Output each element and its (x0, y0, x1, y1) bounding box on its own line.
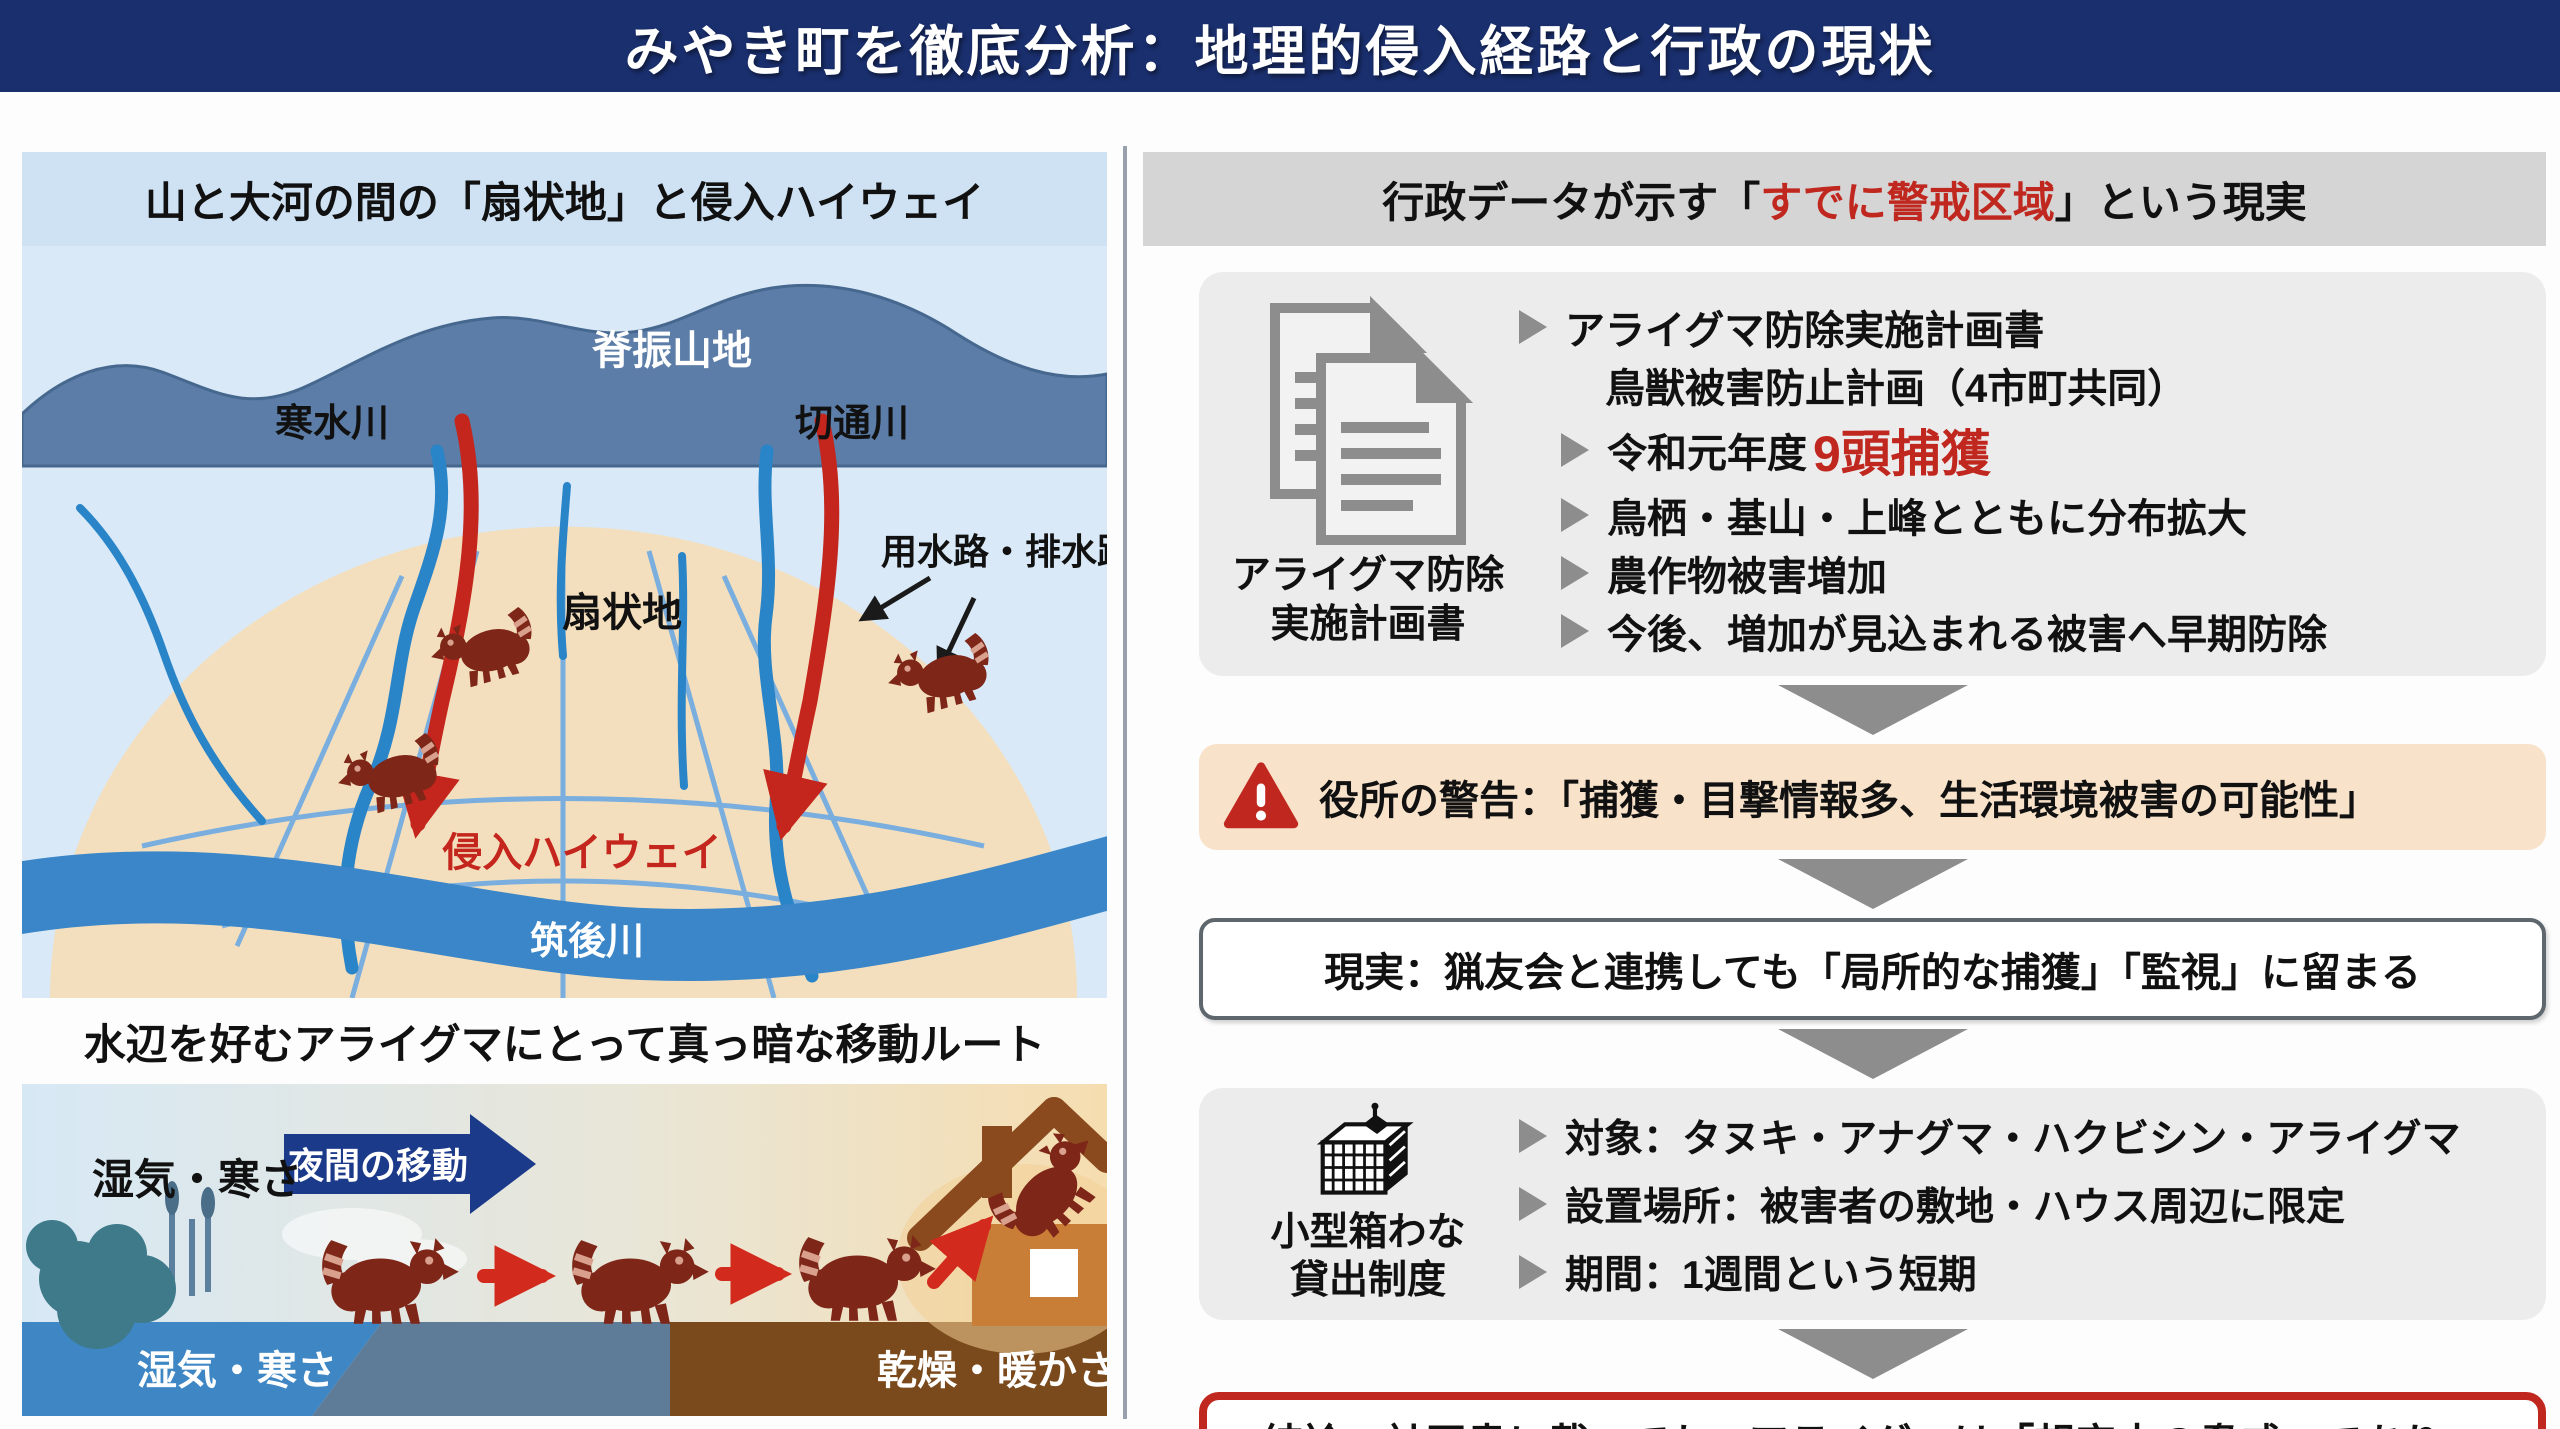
plan-documents-card: アライグマ防除 実施計画書 アライグマ防除実施計画書 鳥獣被害防止計画（4市町共… (1199, 272, 2546, 676)
title-bar: みやき町を徹底分析：地理的侵入経路と行政の現状 (0, 0, 2560, 92)
reality-text: 現実：猟友会と連携しても「局所的な捕獲」「監視」に留まる (1324, 940, 2421, 998)
bullet-triangle-icon (1561, 614, 1589, 648)
plan-documents-left: アライグマ防除 実施計画書 (1225, 296, 1511, 652)
warning-text: 役所の警告：「捕獲・目撃情報多、生活環境被害の可能性」 (1319, 768, 2379, 826)
plan-documents-items: アライグマ防除実施計画書 鳥獣被害防止計画（4市町共同） 令和元年度 9頭捕獲 (1511, 296, 2520, 652)
night-movement-label: 夜間の移動 (287, 1145, 468, 1186)
bullet-triangle-icon (1519, 1255, 1547, 1289)
flow-down-arrow (1778, 685, 1968, 735)
trap-lending-card: 小型箱わな 貸出制度 対象：タヌキ・アナグマ・ハクビシン・アライグマ 設置場所：… (1199, 1088, 2546, 1320)
bullet-triangle-icon (1561, 433, 1589, 467)
waterways-label: 用水路・排水路 (881, 531, 1107, 572)
trap-item-3: 期間：1週間という短期 (1519, 1244, 2520, 1300)
fan-map-svg: 脊振山地 寒水川 切通川 用水路・排水路 扇状地 侵入ハイウェイ 筑後川 (22, 246, 1107, 998)
doc-item-6: 今後、増加が見込まれる被害へ早期防除 (1561, 602, 2520, 660)
scene-svg: 夜間の移動 (22, 1084, 1107, 1416)
right-panel: 行政データが示す「すでに警戒区域」という現実 (1143, 100, 2546, 1423)
box-trap-label-line2: 貸出制度 (1270, 1257, 1465, 1306)
fan-label: 扇状地 (562, 591, 682, 635)
mountain-label: 脊振山地 (592, 329, 752, 373)
conclusion-line1: 結論：計画書に載っても、アライグマは「想定内の脅威」であり、 (1262, 1414, 2484, 1429)
box-trap-label-line1: 小型箱わな (1270, 1209, 1465, 1258)
right-panel-header: 行政データが示す「すでに警戒区域」という現実 (1143, 152, 2546, 246)
bullet-triangle-icon (1561, 556, 1589, 590)
trap-lending-left: 小型箱わな 貸出制度 (1225, 1102, 1511, 1306)
right-header-highlight: すでに警戒区域 (1760, 169, 2054, 230)
scene-top-left-label: 湿気・寒さ (92, 1156, 302, 1203)
doc-item-5: 農作物被害増加 (1561, 544, 2520, 602)
panels: 山と大河の間の「扇状地」と侵入ハイウェイ (22, 100, 2546, 1423)
right-header-prefix: 行政データが示す「 (1382, 169, 1760, 230)
warning-icon (1223, 761, 1299, 833)
catch-count: 9頭捕獲 (1813, 414, 1991, 486)
night-movement-scene: 夜間の移動 (22, 1084, 1107, 1416)
strip-left-label: 湿気・寒さ (137, 1349, 337, 1393)
trap-lending-items: 対象：タヌキ・アナグマ・ハクビシン・アライグマ 設置場所：被害者の敷地・ハウス周… (1511, 1102, 2520, 1306)
highway-label: 侵入ハイウェイ (441, 831, 721, 875)
left-panel-caption: 水辺を好むアライグマにとって真っ暗な移動ルート (22, 998, 1107, 1084)
documents-icon-label-line1: アライグマ防除 (1232, 552, 1504, 601)
river-left-label: 寒水川 (275, 403, 389, 445)
box-trap-icon (1293, 1102, 1443, 1207)
doc-item-3: 令和元年度 9頭捕獲 (1561, 414, 2520, 486)
documents-icon-label: アライグマ防除 実施計画書 (1232, 552, 1504, 650)
warning-box: 役所の警告：「捕獲・目撃情報多、生活環境被害の可能性」 (1199, 744, 2546, 850)
bullet-triangle-icon (1519, 1187, 1547, 1221)
flow-down-arrow (1778, 1029, 1968, 1079)
page-title: みやき町を徹底分析：地理的侵入経路と行政の現状 (625, 7, 1936, 86)
box-trap-label: 小型箱わな 貸出制度 (1270, 1209, 1465, 1307)
trap-item-1: 対象：タヌキ・アナグマ・ハクビシン・アライグマ (1519, 1108, 2520, 1164)
left-panel-header-text: 山と大河の間の「扇状地」と侵入ハイウェイ (145, 169, 984, 230)
right-panel-body: アライグマ防除 実施計画書 アライグマ防除実施計画書 鳥獣被害防止計画（4市町共… (1143, 246, 2546, 1429)
fan-map-illustration: 脊振山地 寒水川 切通川 用水路・排水路 扇状地 侵入ハイウェイ 筑後川 (22, 246, 1107, 998)
documents-icon-label-line2: 実施計画書 (1232, 601, 1504, 650)
left-panel-caption-text: 水辺を好むアライグマにとって真っ暗な移動ルート (84, 1011, 1046, 1072)
flow-down-arrow (1778, 1329, 1968, 1379)
infographic-page: みやき町を徹底分析：地理的侵入経路と行政の現状 山と大河の間の「扇状地」と侵入ハ… (0, 0, 2560, 1429)
river-right-label: 切通川 (795, 403, 909, 445)
panel-divider (1123, 146, 1127, 1419)
reality-box: 現実：猟友会と連携しても「局所的な捕獲」「監視」に留まる (1199, 918, 2546, 1020)
doc-item-1: アライグマ防除実施計画書 (1519, 298, 2520, 356)
bullet-triangle-icon (1561, 498, 1589, 532)
trap-item-2: 設置場所：被害者の敷地・ハウス周辺に限定 (1519, 1176, 2520, 1232)
left-panel-header: 山と大河の間の「扇状地」と侵入ハイウェイ (22, 152, 1107, 246)
right-header-suffix: 」という現実 (2055, 169, 2307, 230)
documents-icon (1263, 296, 1473, 546)
big-river-label: 筑後川 (530, 921, 644, 963)
bullet-triangle-icon (1519, 1119, 1547, 1153)
left-panel: 山と大河の間の「扇状地」と侵入ハイウェイ (22, 100, 1107, 1423)
doc-item-2: 鳥獣被害防止計画（4市町共同） (1605, 356, 2520, 414)
flow-down-arrow (1778, 859, 1968, 909)
bullet-triangle-icon (1519, 310, 1547, 344)
strip-right-label: 乾燥・暖かさ (877, 1349, 1107, 1393)
doc-item-4: 鳥栖・基山・上峰とともに分布拡大 (1561, 486, 2520, 544)
conclusion-box: 結論：計画書に載っても、アライグマは「想定内の脅威」であり、 あなたの天井裏を個… (1199, 1392, 2546, 1429)
